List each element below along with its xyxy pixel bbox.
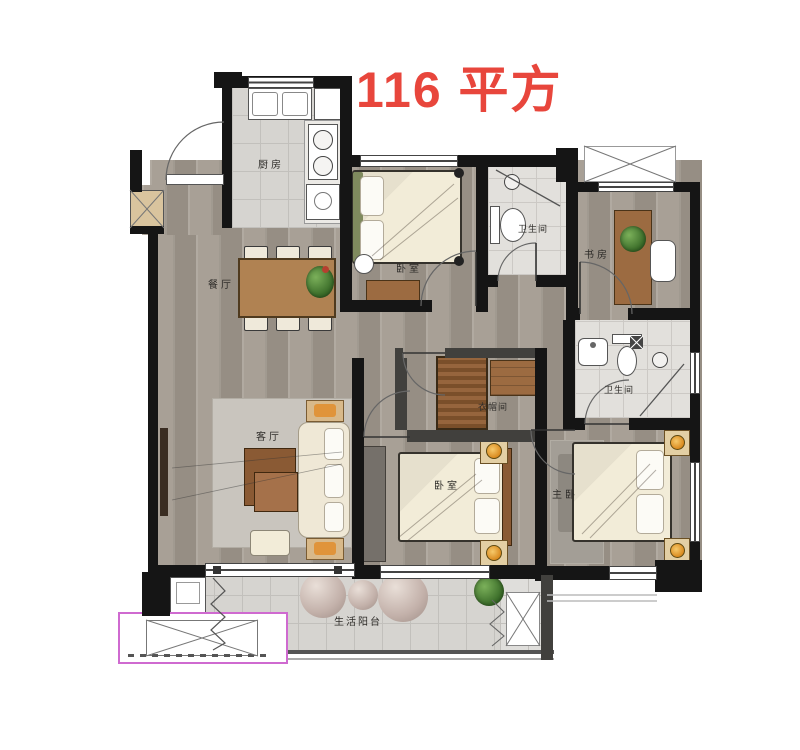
ac-platform bbox=[146, 620, 258, 656]
floor-plan: 厨房 餐厅 卧室 卫生间 书房 客厅 衣帽间 卧室 卫生间 主卧 生活阳台 11… bbox=[0, 0, 800, 750]
wall bbox=[352, 358, 364, 575]
lamp-icon bbox=[670, 435, 685, 450]
door-handle bbox=[213, 566, 221, 574]
flower-icon bbox=[322, 266, 329, 273]
coffee-table-tier bbox=[254, 472, 298, 512]
wardrobe bbox=[362, 446, 386, 562]
dining-chair bbox=[276, 316, 300, 331]
desk-chair bbox=[650, 240, 676, 282]
wall bbox=[566, 155, 578, 320]
room-label-study: 书房 bbox=[584, 246, 610, 261]
room-label-dining: 餐厅 bbox=[208, 276, 234, 291]
window bbox=[598, 182, 674, 192]
dining-chair bbox=[244, 316, 268, 331]
plant-icon bbox=[620, 226, 646, 252]
window bbox=[609, 566, 657, 580]
burner-icon bbox=[313, 130, 333, 150]
tv-panel bbox=[160, 428, 168, 516]
wall bbox=[566, 308, 580, 320]
tray bbox=[314, 542, 336, 555]
page-title: 116 平方 bbox=[356, 50, 563, 122]
wall bbox=[476, 155, 488, 312]
wall bbox=[395, 358, 407, 430]
wall bbox=[547, 566, 609, 580]
sink-basin bbox=[252, 92, 278, 116]
room-label-kitchen: 厨房 bbox=[258, 156, 284, 171]
plant-icon bbox=[474, 576, 504, 606]
toilet-tank bbox=[490, 206, 500, 244]
wall bbox=[476, 275, 498, 287]
pillow bbox=[474, 498, 500, 534]
wall bbox=[445, 348, 547, 358]
ac-platform bbox=[584, 146, 676, 182]
desk bbox=[614, 210, 652, 305]
shaft-box bbox=[130, 190, 164, 228]
wall bbox=[628, 308, 700, 320]
burner-icon bbox=[313, 156, 333, 176]
window bbox=[380, 565, 490, 579]
wall bbox=[222, 88, 232, 228]
wall bbox=[535, 430, 547, 575]
wall bbox=[575, 418, 585, 430]
wall bbox=[340, 167, 352, 312]
floor-drain-icon bbox=[630, 336, 643, 349]
pillow bbox=[360, 176, 384, 216]
sofa-cushion bbox=[324, 464, 344, 498]
dishwasher-dial bbox=[314, 192, 332, 210]
wall bbox=[578, 182, 598, 192]
lamp-icon bbox=[670, 543, 685, 558]
wall bbox=[541, 575, 553, 660]
faucet-icon bbox=[590, 342, 596, 348]
closet-rack bbox=[436, 356, 488, 430]
entry-door-leaf bbox=[166, 174, 224, 185]
wall bbox=[655, 560, 702, 592]
dashed-line bbox=[128, 654, 268, 657]
wall bbox=[407, 430, 535, 442]
room-label-bedroom-top: 卧室 bbox=[396, 260, 422, 275]
ottoman bbox=[250, 530, 290, 556]
dining-chair bbox=[308, 316, 332, 331]
bedpost bbox=[454, 168, 464, 178]
wall bbox=[629, 418, 700, 430]
pillow bbox=[636, 450, 664, 490]
wall bbox=[535, 348, 547, 440]
room-label-bath-master: 卫生间 bbox=[604, 383, 634, 396]
window bbox=[690, 462, 700, 542]
room-label-bedroom-second: 卧室 bbox=[434, 477, 460, 492]
sofa-cushion bbox=[324, 502, 344, 532]
wall bbox=[130, 226, 164, 234]
sliding-door bbox=[205, 563, 355, 577]
round-table bbox=[354, 254, 374, 274]
shower-head-icon bbox=[504, 174, 520, 190]
wall bbox=[130, 150, 142, 192]
room-label-master: 主卧 bbox=[552, 486, 578, 501]
decor-ball bbox=[300, 572, 346, 618]
wall bbox=[490, 565, 536, 579]
wall bbox=[148, 232, 158, 577]
washer-drum bbox=[176, 582, 200, 604]
lamp-icon bbox=[486, 443, 502, 459]
sofa-cushion bbox=[324, 428, 344, 460]
room-label-balcony: 生活阳台 bbox=[334, 613, 382, 628]
ac-platform bbox=[506, 592, 540, 646]
door-handle bbox=[334, 566, 342, 574]
wall bbox=[340, 300, 432, 312]
fridge bbox=[314, 88, 342, 120]
wall bbox=[142, 572, 170, 616]
plant-icon bbox=[306, 266, 334, 298]
lamp-icon bbox=[486, 545, 502, 561]
pillow bbox=[636, 494, 664, 534]
window bbox=[690, 352, 700, 394]
room-label-bath-top: 卫生间 bbox=[518, 222, 548, 235]
decor-ball bbox=[348, 580, 378, 610]
closet-shelf bbox=[490, 360, 536, 396]
wall bbox=[395, 348, 403, 358]
toilet bbox=[617, 346, 637, 376]
shower-head-icon bbox=[652, 352, 668, 368]
tray bbox=[314, 404, 336, 417]
wall bbox=[364, 565, 380, 579]
bedpost bbox=[454, 256, 464, 266]
wall bbox=[563, 320, 575, 430]
window bbox=[248, 77, 314, 88]
window bbox=[360, 155, 458, 167]
room-label-closet: 衣帽间 bbox=[478, 400, 508, 413]
sink-basin bbox=[282, 92, 308, 116]
decor-ball bbox=[378, 572, 428, 622]
room-label-living: 客厅 bbox=[256, 428, 282, 443]
